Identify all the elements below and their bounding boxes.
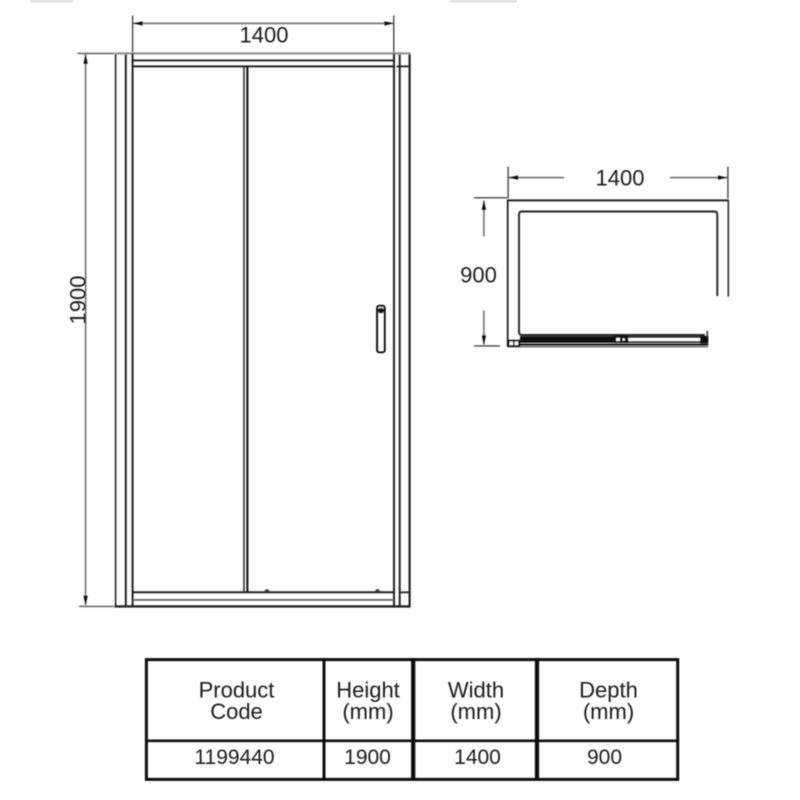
svg-text:1199440: 1199440: [194, 746, 274, 769]
svg-text:1400: 1400: [240, 23, 289, 48]
svg-text:1900: 1900: [66, 276, 91, 325]
svg-text:900: 900: [460, 263, 497, 288]
svg-text:1400: 1400: [596, 166, 645, 191]
svg-text:Code: Code: [210, 699, 263, 724]
svg-text:900: 900: [587, 746, 622, 769]
svg-text:(mm): (mm): [583, 699, 634, 724]
svg-text:1400: 1400: [454, 746, 501, 769]
svg-text:1900: 1900: [344, 746, 391, 769]
svg-text:(mm): (mm): [342, 699, 393, 724]
svg-text:(mm): (mm): [450, 699, 501, 724]
